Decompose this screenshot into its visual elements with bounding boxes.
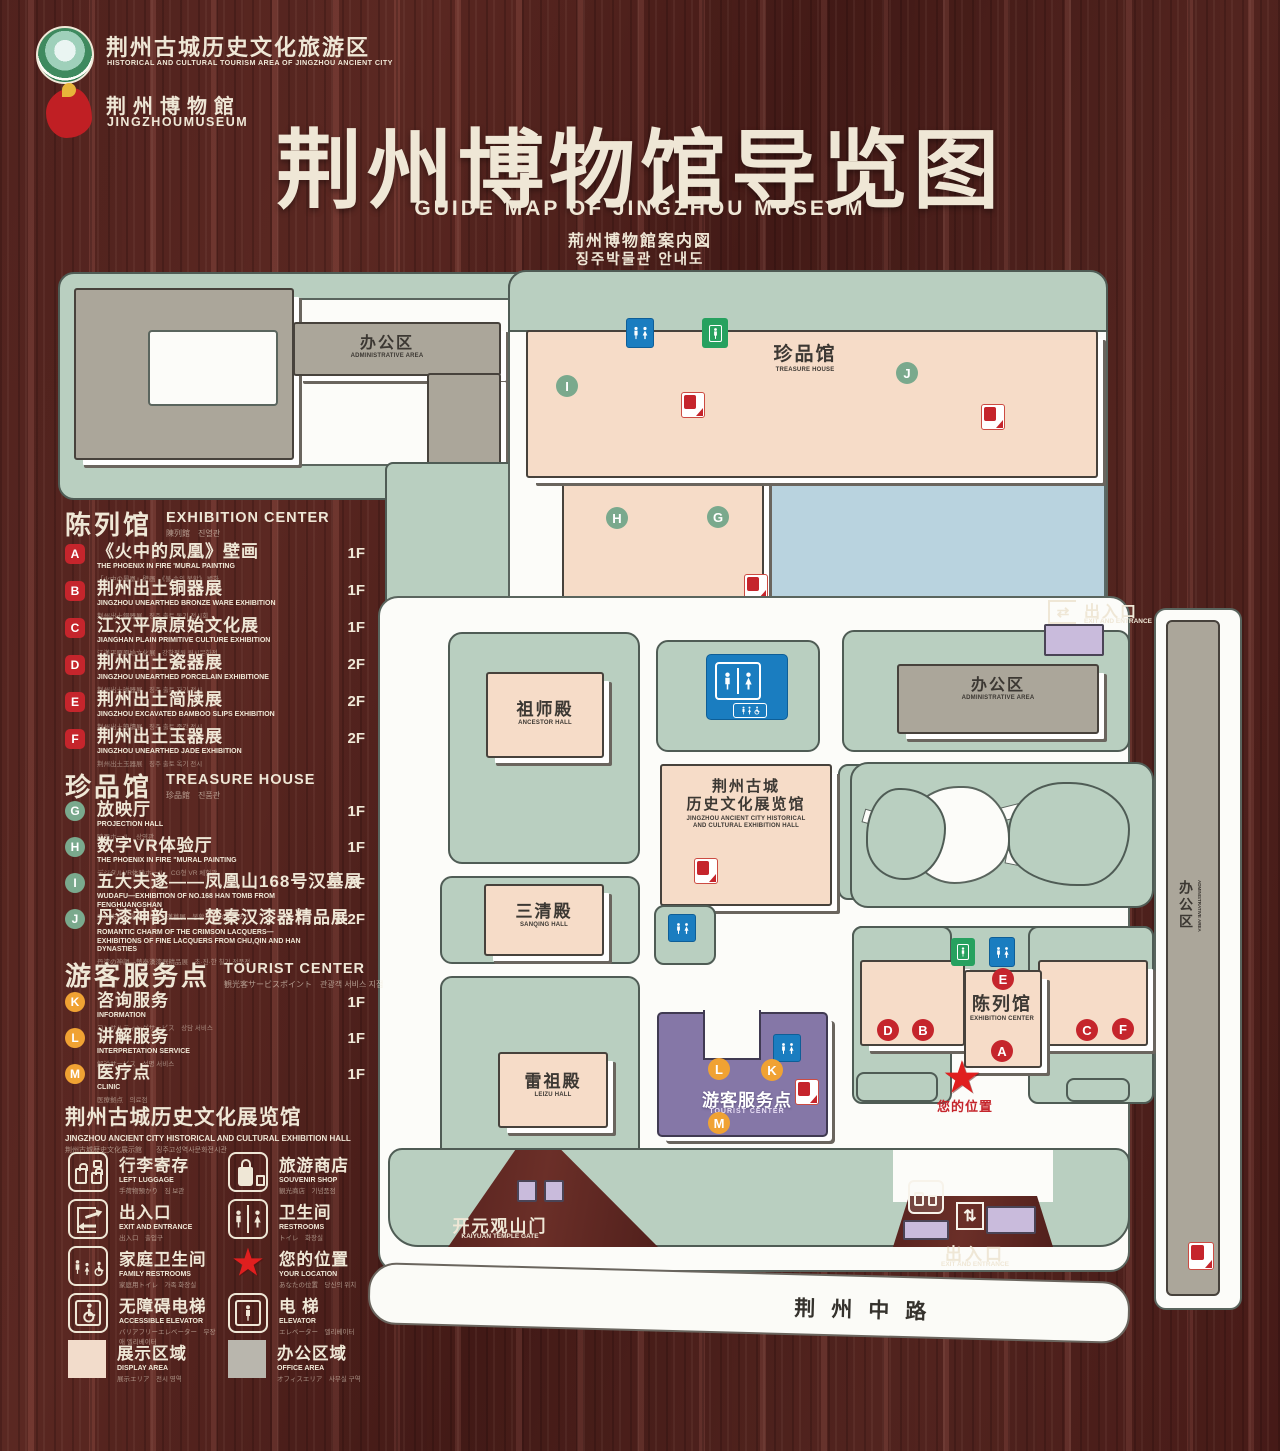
escalator-icon	[681, 392, 705, 418]
legend-item-C: C 江汉平原原始文化展JIANGHAN PLAIN PRIMITIVE CULT…	[65, 617, 365, 657]
admin-area-label: 办公区 ADMINISTRATIVE AREA	[312, 334, 462, 360]
legend-item-B: B 荆州出土铜器展JINGZHOU UNEARTHED BRONZE WARE …	[65, 580, 365, 620]
tourist-center-label-en: TOURIST CENTER	[687, 1108, 807, 1115]
south-gate-west	[903, 1220, 949, 1240]
legend-item-E: E 荆州出土简牍展JINGZHOU EXCAVATED BAMBOO SLIPS…	[65, 691, 365, 731]
legend-item-H: H 数字VR体验厅THE PHOENIX IN FIRE "MURAL PAIN…	[65, 837, 365, 877]
map-marker-I: I	[556, 375, 578, 397]
page-title-en: GUIDE MAP OF JINGZHOU MUSEUM	[240, 197, 1040, 221]
legend-swatch-office-area: 办公区域OFFICE AREAオフィスエリア 사무실 구역	[228, 1340, 380, 1383]
map-marker-H: H	[606, 507, 628, 529]
exit-entrance-icon: ⇅	[956, 1202, 984, 1230]
admin-building-east-strip	[1166, 620, 1220, 1296]
your-location-star: ★	[944, 1058, 980, 1098]
legend-icon-exit-entrance: 出入口EXIT AND ENTRANCE出入口 출입구	[68, 1199, 220, 1242]
family-restroom-icon	[68, 1246, 108, 1286]
map-marker-J: J	[896, 362, 918, 384]
kaiyuan-gate-label-en: KAIYUAN TEMPLE GATE	[440, 1233, 560, 1240]
escalator-icon	[981, 404, 1005, 430]
map-marker-D: D	[877, 1019, 899, 1041]
exit-label-south-en: EXIT AND ENTRANCE	[920, 1261, 1030, 1268]
tourism-area-name-en: HISTORICAL AND CULTURAL TOURISM AREA OF …	[107, 58, 393, 67]
exit-entrance-icon: ⇄	[1048, 600, 1076, 624]
south-gate-east	[986, 1206, 1036, 1234]
entrance-gate-building	[1044, 624, 1104, 656]
restroom-icon	[668, 914, 696, 942]
legend-icon-family-restrooms: 家庭卫生间FAMILY RESTROOMS家庭用トイレ 가족 화장실	[68, 1246, 220, 1289]
map-marker-F: F	[1112, 1018, 1134, 1040]
map-marker-C: C	[1076, 1019, 1098, 1041]
restroom-icon	[228, 1199, 268, 1239]
restroom-icon	[626, 318, 654, 348]
sanqing-hall-label: 三清殿 SANQING HALL	[486, 902, 602, 930]
restroom-pair-icon	[715, 662, 761, 700]
road: 荆州中路	[367, 1262, 1130, 1344]
legend-icon-restrooms: 卫生间RESTROOMSトイレ 화장실	[228, 1199, 380, 1242]
your-location-label: 您的位置	[925, 1096, 1005, 1115]
legend-section-treasure: 珍品馆 TREASURE HOUSE珍品館 진품관	[65, 767, 315, 804]
tourist-center-notch	[703, 1010, 761, 1060]
legend-icon-your-location: ★ 您的位置YOUR LOCATIONあなたの位置 당신의 위치	[228, 1246, 380, 1289]
exhibition-center-label: 陈列馆 EXHIBITION CENTER	[950, 994, 1054, 1023]
museum-guide-poster: 荆州古城历史文化旅游区 HISTORICAL AND CULTURAL TOUR…	[0, 0, 1280, 1451]
legend-swatch-display-area: 展示区域DISPLAY AREA展示エリア 전시 영역	[68, 1340, 220, 1383]
legend-item-D: D 荆州出土瓷器展JINGZHOU UNEARTHED PORCELAIN EX…	[65, 654, 365, 694]
restrooms-sign	[706, 654, 788, 720]
legend-item-G: G 放映厅PROJECTION HALL映画ホール 상영관 1F	[65, 801, 365, 841]
left-luggage-icon	[68, 1152, 108, 1192]
map-marker-K: K	[761, 1059, 783, 1081]
legend-item-L: L 讲解服务INTERPRETATION SERVICE解説サービス 설명 서비…	[65, 1028, 365, 1068]
accessible-elevator-icon	[68, 1293, 108, 1333]
legend-item-K: K 咨询服务INFORMATIONコンサルティングサービス 상담 서비스 1F	[65, 992, 365, 1032]
museum-logo-bird	[46, 88, 92, 138]
map-marker-M: M	[708, 1112, 730, 1134]
office-area-swatch	[228, 1340, 266, 1378]
your-location-star-icon: ★	[228, 1246, 268, 1289]
map-marker-B: B	[912, 1019, 934, 1041]
page-title-ko: 징주박물관 안내도	[240, 248, 1040, 269]
exit-label-top-en: EXIT AND ENTRANCE	[1084, 618, 1152, 625]
leizu-hall-label: 雷祖殿 LEIZU HALL	[500, 1072, 606, 1100]
legend-item-M: M 医疗点CLINIC医療拠点 의료점 1F	[65, 1064, 365, 1104]
treasure-lawn-top	[508, 270, 1108, 332]
exit-entrance-icon	[68, 1199, 108, 1239]
kaiyuan-gate-east	[544, 1180, 564, 1202]
elevator-icon	[228, 1293, 268, 1333]
exhibition-lawn-foot	[1066, 1078, 1130, 1102]
kaiyuan-gate-west	[517, 1180, 537, 1202]
display-area-swatch	[68, 1340, 106, 1378]
shopping-bag-icon	[228, 1152, 268, 1192]
escalator-icon	[1188, 1242, 1214, 1270]
map-marker-A: A	[991, 1040, 1013, 1062]
map-marker-E: E	[992, 968, 1014, 990]
treasure-house-label: 珍品馆 TREASURE HOUSE	[745, 344, 865, 374]
family-restroom-icon	[733, 703, 767, 718]
museum-name-en: JINGZHOUMUSEUM	[107, 115, 248, 129]
legend-section-exhibition: 陈列馆 EXHIBITION CENTER陳列館 진열관	[65, 505, 330, 542]
elevator-icon	[951, 938, 975, 966]
legend-icon-souvenir-shop: 旅游商店SOUVENIR SHOP観光商店 기념품점	[228, 1152, 380, 1195]
legend-hall-note: 荆州古城历史文化展览馆 JINGZHOU ANCIENT CITY HISTOR…	[65, 1100, 381, 1155]
restroom-icon	[989, 937, 1015, 967]
legend-section-tourist: 游客服务点 TOURIST CENTER観光客サービスポイント 관광객 서비스 …	[65, 956, 383, 993]
admin-building-notch	[148, 330, 278, 406]
legend-icon-accessible-elevator: 无障碍电梯ACCESSIBLE ELEVATORバリアフリーエレベーター 무장애…	[68, 1293, 220, 1346]
admin-east-label: 办公区 ADMINISTRATIVE AREA	[928, 676, 1068, 702]
legend-item-A: A 《火中的凤凰》壁画THE PHOENIX IN FIRE 'MURAL PA…	[65, 543, 365, 583]
ancestor-hall-label: 祖师殿 ANCESTOR HALL	[489, 700, 601, 728]
escalator-icon	[694, 858, 718, 884]
history-hall-label: 荆州古城 历史文化展览馆 JINGZHOU ANCIENT CITY HISTO…	[664, 778, 828, 830]
legend-icon-left-luggage: 行李寄存LEFT LUGGAGE手荷物預かり 짐 보관	[68, 1152, 220, 1195]
map-marker-G: G	[707, 506, 729, 528]
east-strip-label: 办公区 ADMINISTRATIVE AREA	[1176, 880, 1202, 932]
tourism-area-logo	[36, 26, 94, 84]
elevator-icon	[702, 318, 728, 348]
road-label: 荆州中路	[794, 1292, 943, 1326]
legend-item-F: F 荆州出土玉器展JINGZHOU UNEARTHED JADE EXHIBIT…	[65, 728, 365, 768]
restroom-icon	[773, 1034, 801, 1062]
legend-icon-elevator: 电 梯ELEVATORエレベーター 엘리베이터	[228, 1293, 380, 1336]
map-marker-L: L	[708, 1058, 730, 1080]
garden-island-east	[1008, 782, 1130, 886]
left-luggage-map-icon	[908, 1180, 944, 1214]
